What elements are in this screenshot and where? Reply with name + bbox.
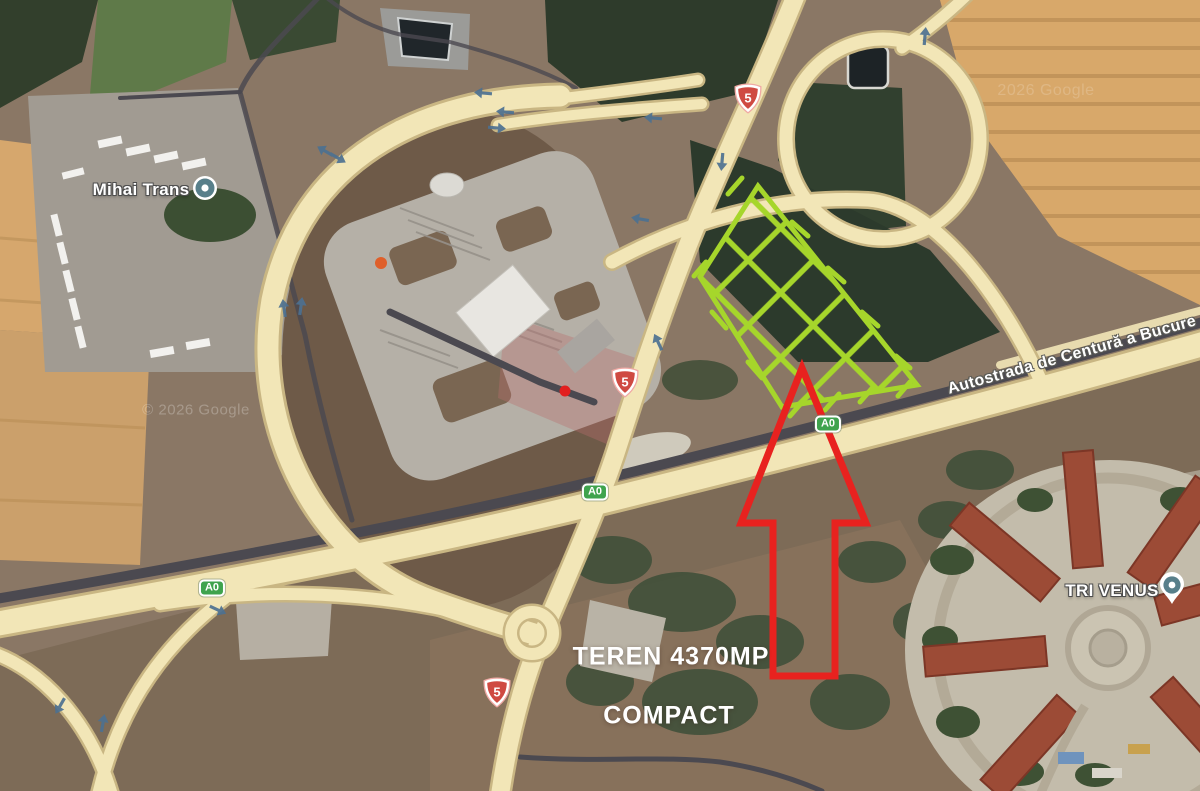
parcel-area-label: TEREN 4370MP <box>573 643 770 672</box>
google-watermark-left: © 2026 Google <box>142 402 250 419</box>
red-dot-marker <box>560 386 571 397</box>
parcel-compact-label: COMPACT <box>603 702 735 731</box>
a0-motorway-shield: A0 <box>582 484 608 501</box>
map-graphics: 5 5 5 <box>0 0 1200 791</box>
mihai-trans-pin-icon[interactable] <box>193 176 217 200</box>
svg-text:5: 5 <box>493 685 500 700</box>
a0-motorway-shield: A0 <box>815 416 841 433</box>
poi-label-mihai-trans[interactable]: Mihai Trans <box>93 180 190 200</box>
svg-text:5: 5 <box>621 375 628 390</box>
dome-building <box>430 173 464 197</box>
orange-structure <box>375 257 387 269</box>
svg-text:5: 5 <box>744 91 751 106</box>
google-watermark-top-right: 2026 Google <box>997 82 1094 100</box>
satellite-map-canvas[interactable]: 5 5 5 A0 A0 A0 Mihai Trans TRI VENUS TER… <box>0 0 1200 791</box>
a0-motorway-shield: A0 <box>199 580 225 597</box>
poi-label-tri-venus[interactable]: TRI VENUS <box>1065 581 1158 601</box>
